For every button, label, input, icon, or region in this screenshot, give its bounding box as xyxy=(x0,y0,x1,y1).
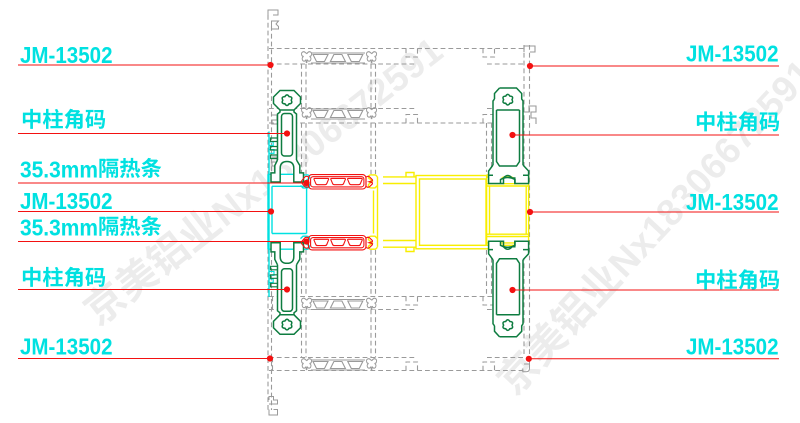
svg-text:JM-13502: JM-13502 xyxy=(20,334,113,360)
svg-text:JM-13502: JM-13502 xyxy=(686,189,779,215)
svg-text:JM-13502: JM-13502 xyxy=(686,41,779,67)
svg-text:JM-13502: JM-13502 xyxy=(20,42,113,68)
svg-text:35.3mm: 35.3mm xyxy=(20,157,98,183)
svg-text:35.3mm: 35.3mm xyxy=(20,215,98,241)
svg-text:JM-13502: JM-13502 xyxy=(20,188,113,214)
svg-text:JM-13502: JM-13502 xyxy=(686,334,779,360)
